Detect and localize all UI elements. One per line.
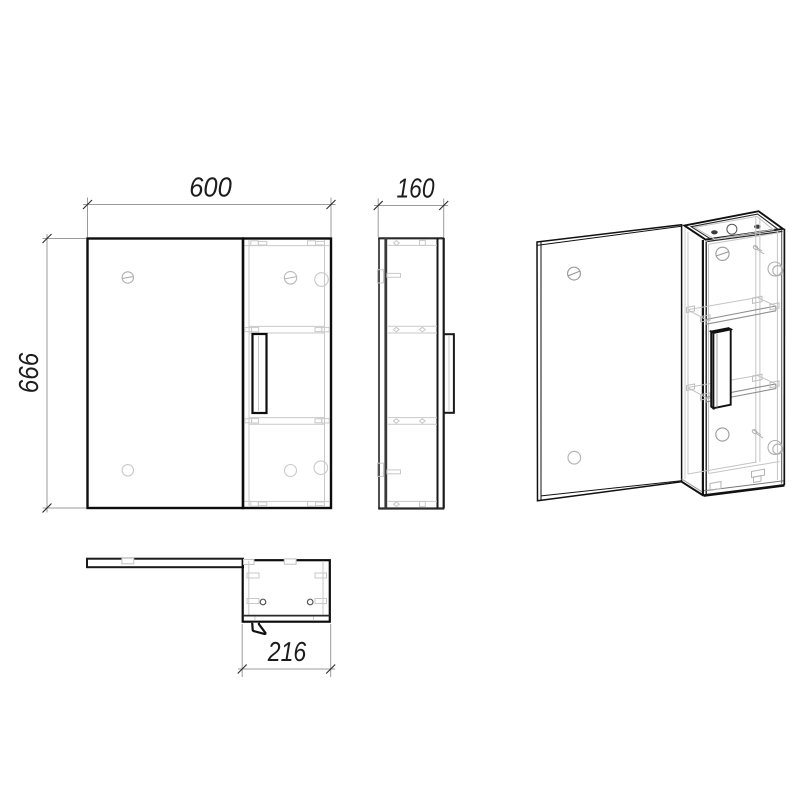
svg-text:666: 666: [13, 352, 44, 393]
svg-text:216: 216: [267, 636, 307, 667]
svg-text:600: 600: [189, 172, 232, 203]
svg-text:160: 160: [397, 173, 436, 204]
